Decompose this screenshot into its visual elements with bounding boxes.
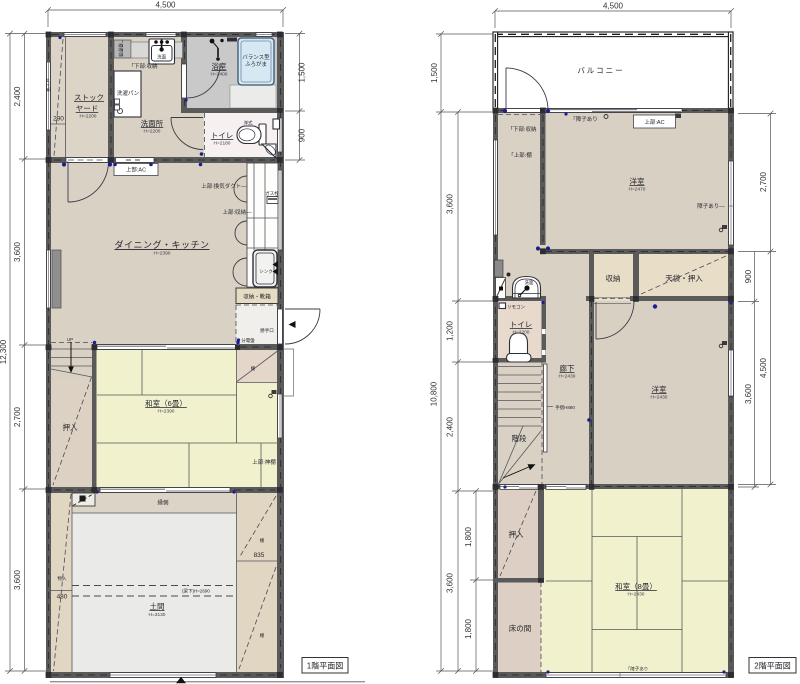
svg-text:収納: 収納: [606, 273, 621, 283]
svg-text:押入: 押入: [63, 422, 78, 432]
svg-text:900: 900: [298, 128, 307, 142]
svg-text:1階平面図: 1階平面図: [307, 661, 343, 671]
svg-text:リモコン: リモコン: [507, 305, 525, 310]
svg-text:H=3130: H=3130: [149, 612, 166, 618]
svg-text:H=2430: H=2430: [628, 592, 645, 598]
svg-text:トイレ: トイレ: [510, 320, 533, 329]
svg-text:3,600: 3,600: [13, 241, 22, 262]
svg-text:分電盤: 分電盤: [241, 337, 255, 344]
svg-text:浴室: 浴室: [212, 61, 227, 71]
svg-text:棚: 棚: [260, 632, 265, 639]
svg-text:10,800: 10,800: [430, 381, 439, 406]
svg-text:1,800: 1,800: [464, 526, 473, 547]
svg-text:1,500: 1,500: [298, 62, 307, 83]
svg-text:給湯器: 給湯器: [118, 43, 125, 57]
svg-text:洗面: 洗面: [525, 279, 534, 286]
svg-text:(梁下)H=2690: (梁下)H=2690: [182, 588, 210, 595]
svg-text:H=2390: H=2390: [158, 409, 175, 415]
svg-text:2,700: 2,700: [759, 171, 768, 192]
svg-text:上部:収納―: 上部:収納―: [222, 208, 252, 216]
svg-text:洋式: 洋式: [244, 120, 253, 127]
svg-text:H=2470: H=2470: [629, 187, 646, 193]
svg-text:洗面: 洗面: [157, 54, 166, 61]
svg-text:勝手口: 勝手口: [260, 327, 274, 334]
svg-text:上部:AC: 上部:AC: [126, 166, 146, 174]
svg-text:手摺H880: 手摺H880: [555, 404, 575, 411]
svg-text:ガス栓: ガス栓: [265, 190, 279, 197]
svg-text:床の間: 床の間: [509, 623, 532, 633]
svg-text:H=2200: H=2200: [80, 114, 97, 120]
svg-text:H=2390: H=2390: [154, 251, 171, 257]
svg-text:「上部:棚: 「上部:棚: [508, 151, 532, 159]
svg-text:バランス型: バランス型: [242, 53, 270, 61]
svg-text:3,600: 3,600: [446, 193, 455, 214]
svg-text:1,200: 1,200: [446, 320, 455, 341]
svg-text:棚: 棚: [260, 537, 265, 544]
svg-text:12,300: 12,300: [0, 339, 8, 364]
svg-text:「下部:収納: 「下部:収納: [128, 62, 158, 70]
svg-text:廊下: 廊下: [560, 363, 575, 373]
svg-text:835: 835: [254, 552, 265, 559]
svg-text:2階平面図: 2階平面図: [754, 661, 790, 671]
svg-text:290: 290: [53, 116, 64, 123]
svg-text:物入: 物入: [58, 575, 67, 582]
svg-text:収納・靴箱: 収納・靴箱: [243, 293, 271, 301]
svg-text:H=2430: H=2430: [559, 374, 576, 380]
svg-text:土間: 土間: [150, 601, 165, 611]
svg-text:押入: 押入: [509, 529, 524, 539]
svg-text:2,700: 2,700: [13, 406, 22, 427]
svg-text:480: 480: [57, 594, 68, 601]
svg-text:1,500: 1,500: [430, 62, 439, 83]
svg-text:4,500: 4,500: [759, 357, 768, 378]
svg-text:トイレ: トイレ: [211, 131, 234, 140]
svg-text:「障子あり: 「障子あり: [626, 666, 649, 673]
svg-text:H=2180: H=2180: [214, 141, 231, 147]
svg-text:ストック: ストック: [74, 93, 104, 102]
svg-text:洗面所: 洗面所: [141, 118, 164, 128]
svg-text:2,400: 2,400: [446, 416, 455, 437]
svg-text:H=2400: H=2400: [211, 72, 228, 78]
svg-text:棚: 棚: [251, 365, 256, 372]
svg-text:4,500: 4,500: [155, 1, 176, 10]
svg-text:H=2200: H=2200: [513, 330, 530, 336]
svg-text:洋室: 洋室: [630, 176, 645, 186]
svg-text:階段: 階段: [512, 433, 527, 443]
svg-text:UP: UP: [67, 337, 73, 342]
svg-text:上部:AC: 上部:AC: [644, 118, 664, 126]
svg-text:バルコニー: バルコニー: [577, 66, 624, 75]
svg-text:ダイニング・キッチン: ダイニング・キッチン: [114, 239, 209, 250]
svg-text:H=2200: H=2200: [144, 129, 161, 135]
svg-text:「下部:収納: 「下部:収納: [507, 125, 537, 133]
svg-text:和室（6畳）: 和室（6畳）: [145, 398, 187, 408]
svg-text:上部:神棚: 上部:神棚: [252, 458, 276, 466]
svg-text:1,800: 1,800: [464, 618, 473, 639]
svg-text:900: 900: [744, 269, 753, 283]
svg-text:ふろがま: ふろがま: [245, 60, 267, 68]
svg-text:2,400: 2,400: [13, 86, 22, 107]
svg-text:和室（8畳）: 和室（8畳）: [615, 581, 657, 591]
svg-text:3,600: 3,600: [744, 383, 753, 404]
svg-text:洋室: 洋室: [652, 384, 667, 394]
svg-text:障子あり―: 障子あり―: [697, 202, 725, 210]
svg-text:3,600: 3,600: [13, 569, 22, 590]
svg-text:天袋・押入: 天袋・押入: [665, 273, 703, 283]
svg-text:上部:換気ダクト―: 上部:換気ダクト―: [201, 182, 247, 190]
svg-text:「障子あり: 「障子あり: [570, 115, 598, 123]
svg-text:洗濯パン: 洗濯パン: [117, 89, 140, 97]
svg-text:3,600: 3,600: [446, 572, 455, 593]
svg-text:縁側: 縁側: [157, 499, 169, 507]
svg-text:4,500: 4,500: [603, 2, 624, 11]
svg-text:H=2430: H=2430: [651, 395, 668, 401]
svg-text:格子戸: 格子戸: [45, 78, 52, 92]
svg-text:ヤード: ヤード: [76, 104, 99, 113]
